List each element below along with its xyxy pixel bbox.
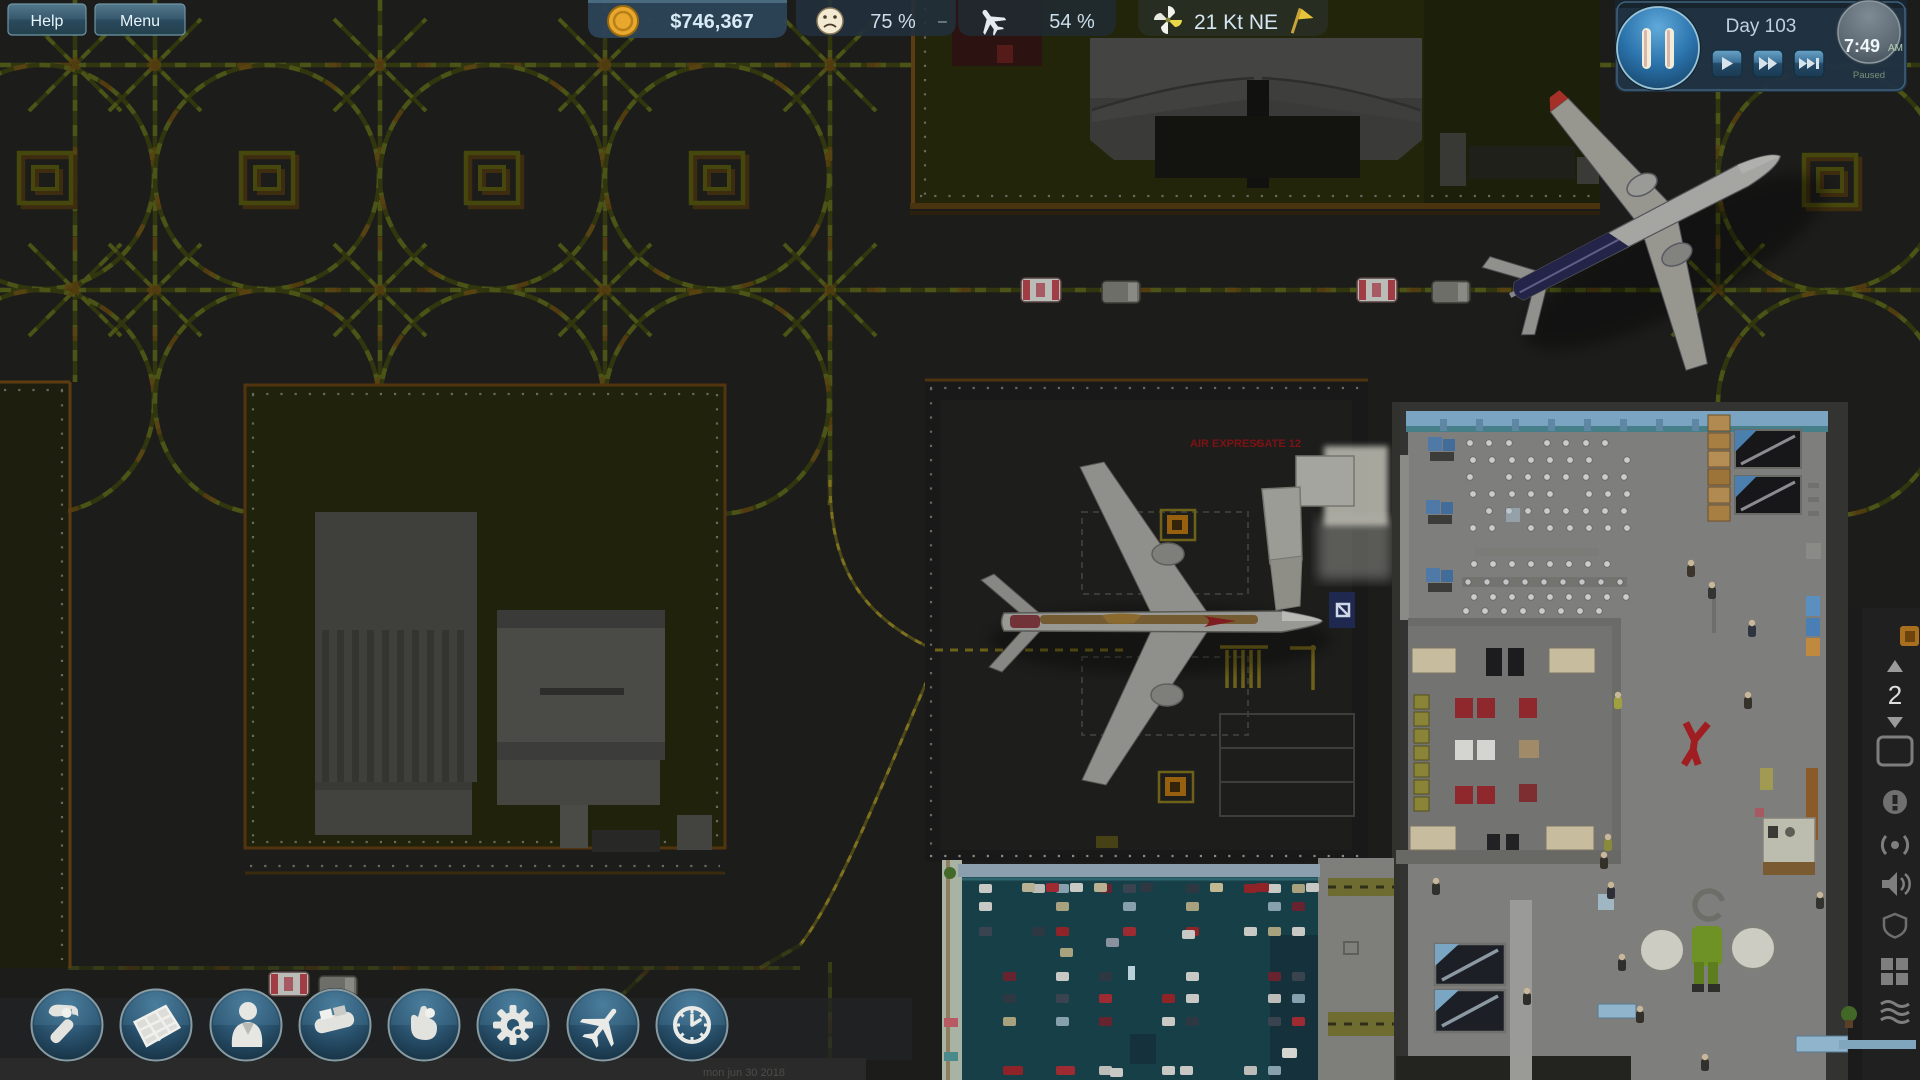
- svg-text:2: 2: [1888, 680, 1902, 710]
- svg-text:54 %: 54 %: [1049, 11, 1095, 33]
- svg-text:7:49: 7:49: [1844, 36, 1880, 56]
- svg-text:21 Kt NE: 21 Kt NE: [1194, 11, 1278, 34]
- svg-text:–: –: [938, 13, 947, 30]
- svg-text:GATE 12: GATE 12: [1256, 438, 1301, 450]
- svg-text:Paused: Paused: [1853, 70, 1885, 81]
- svg-text:mon jun 30 2018: mon jun 30 2018: [703, 1067, 785, 1079]
- svg-text:AIR EXPRESS: AIR EXPRESS: [1190, 438, 1264, 450]
- svg-text:$746,367: $746,367: [670, 11, 753, 33]
- svg-text:Day 103: Day 103: [1726, 16, 1797, 37]
- svg-text:Menu: Menu: [120, 13, 160, 30]
- svg-text:Help: Help: [31, 13, 64, 30]
- svg-text:AM: AM: [1888, 43, 1903, 54]
- svg-text:75 %: 75 %: [870, 11, 916, 33]
